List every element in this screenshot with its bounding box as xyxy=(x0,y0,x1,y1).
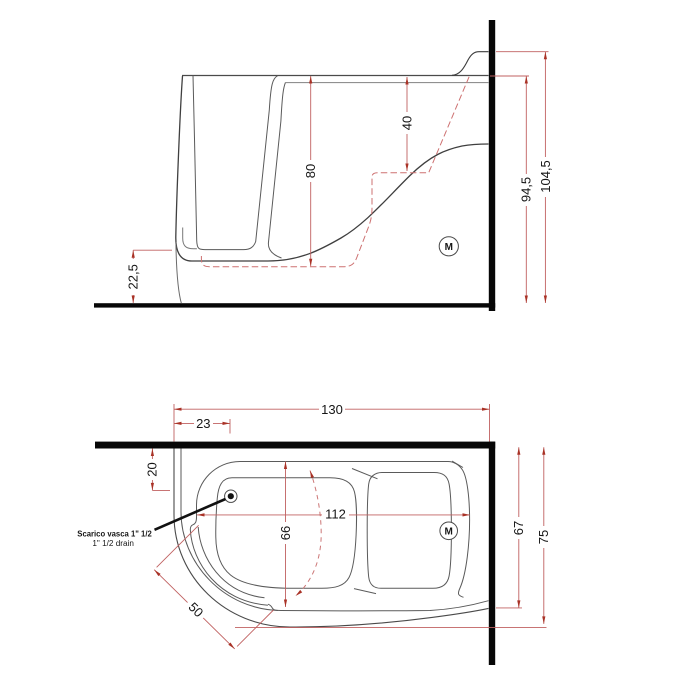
svg-text:80: 80 xyxy=(303,164,318,178)
svg-text:M: M xyxy=(445,526,453,537)
svg-text:130: 130 xyxy=(321,402,343,417)
svg-text:67: 67 xyxy=(511,521,526,535)
svg-text:Scarico vasca 1" 1/2: Scarico vasca 1" 1/2 xyxy=(77,529,152,539)
svg-text:112: 112 xyxy=(325,507,346,522)
svg-text:66: 66 xyxy=(278,526,293,540)
svg-text:94,5: 94,5 xyxy=(519,177,534,202)
svg-text:1" 1/2 drain: 1" 1/2 drain xyxy=(92,539,133,548)
svg-text:M: M xyxy=(445,242,453,253)
svg-text:23: 23 xyxy=(196,416,210,431)
svg-text:20: 20 xyxy=(145,462,160,476)
svg-text:104,5: 104,5 xyxy=(538,160,553,193)
svg-text:75: 75 xyxy=(536,530,551,544)
svg-text:40: 40 xyxy=(399,116,414,130)
svg-text:22,5: 22,5 xyxy=(126,264,141,289)
